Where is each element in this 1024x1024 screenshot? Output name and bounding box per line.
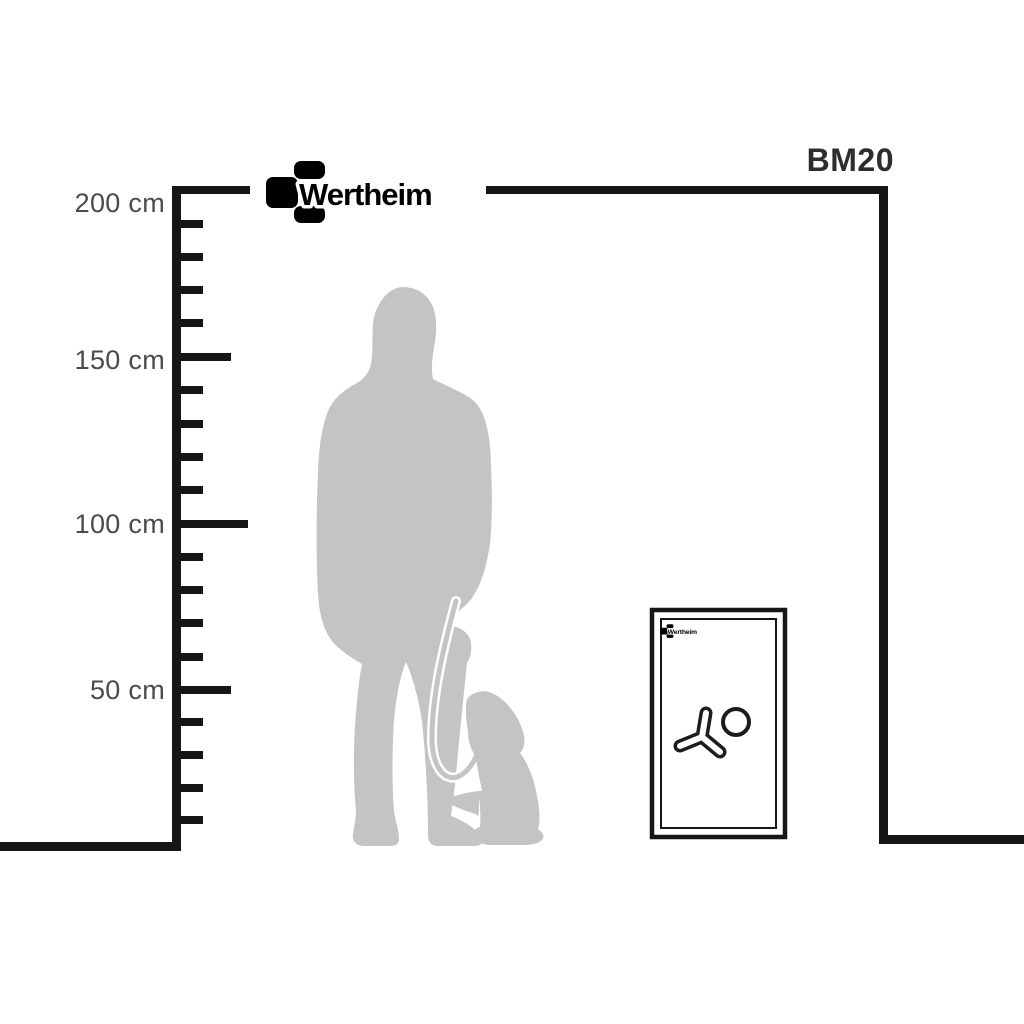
- ruler-label-150cm: 150 cm: [5, 346, 165, 374]
- tick-minor: [176, 816, 203, 824]
- tick-minor: [176, 386, 203, 394]
- wall-line-right: [879, 186, 888, 840]
- tick-minor: [176, 253, 203, 261]
- tick-100cm: [176, 520, 248, 528]
- tick-minor: [176, 784, 203, 792]
- safe-outer-frame: [652, 610, 785, 837]
- size-comparison-diagram: Wertheim 200 cm 150 cm 100 cm 50 cm BM20: [0, 0, 1024, 1024]
- ruler-label-50cm: 50 cm: [5, 676, 165, 704]
- ruler-label-200cm: 200 cm: [5, 189, 165, 217]
- person-silhouette: [317, 287, 492, 846]
- ground-line-left: [0, 842, 181, 851]
- tick-50cm: [176, 686, 231, 694]
- safe-front: [652, 610, 785, 837]
- model-label: BM20: [770, 143, 894, 177]
- reference-line-top: [486, 186, 884, 194]
- tick-minor: [176, 486, 203, 494]
- tick-150cm: [176, 353, 231, 361]
- tick-200cm: [176, 186, 250, 194]
- tick-minor: [176, 553, 203, 561]
- tick-minor: [176, 420, 203, 428]
- tick-minor: [176, 586, 203, 594]
- tick-minor: [176, 286, 203, 294]
- ruler-label-100cm: 100 cm: [5, 510, 165, 538]
- tick-minor: [176, 751, 203, 759]
- tick-minor: [176, 653, 203, 661]
- ground-line-right: [879, 835, 1024, 844]
- safe-dial-icon: [723, 709, 749, 735]
- tick-minor: [176, 220, 203, 228]
- tick-minor: [176, 319, 203, 327]
- tick-minor: [176, 718, 203, 726]
- tick-minor: [176, 619, 203, 627]
- brand-logo: Wertheim: [266, 161, 432, 223]
- tick-minor: [176, 453, 203, 461]
- brand-wordmark: Wertheim: [299, 177, 432, 212]
